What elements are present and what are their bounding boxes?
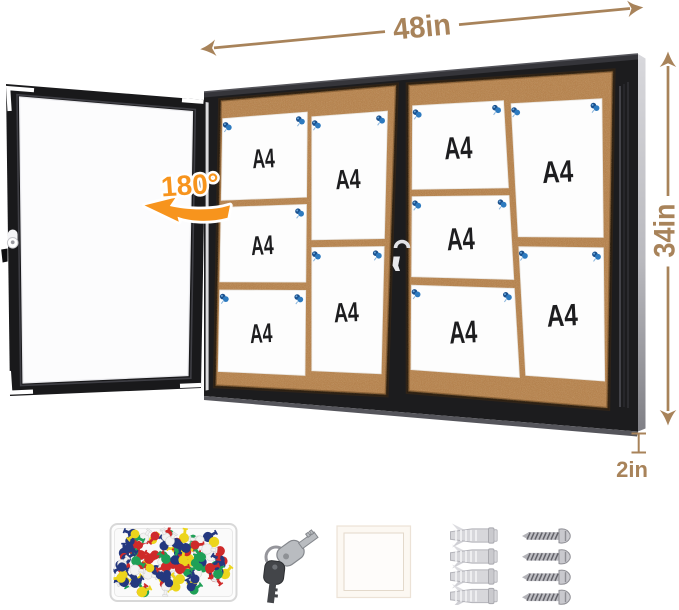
svg-text:A4: A4 [541, 153, 574, 190]
svg-text:2in: 2in [616, 457, 648, 482]
svg-text:A4: A4 [546, 297, 579, 334]
svg-text:A4: A4 [250, 230, 274, 261]
svg-text:A4: A4 [443, 129, 473, 166]
svg-text:A4: A4 [249, 318, 273, 349]
svg-text:48in: 48in [392, 8, 453, 46]
svg-text:A4: A4 [446, 220, 476, 257]
svg-text:A4: A4 [448, 313, 478, 350]
svg-text:A4: A4 [251, 143, 275, 174]
svg-text:34in: 34in [649, 204, 679, 258]
svg-text:A4: A4 [335, 163, 362, 195]
svg-text:A4: A4 [333, 296, 360, 328]
svg-text:180°: 180° [160, 168, 220, 203]
